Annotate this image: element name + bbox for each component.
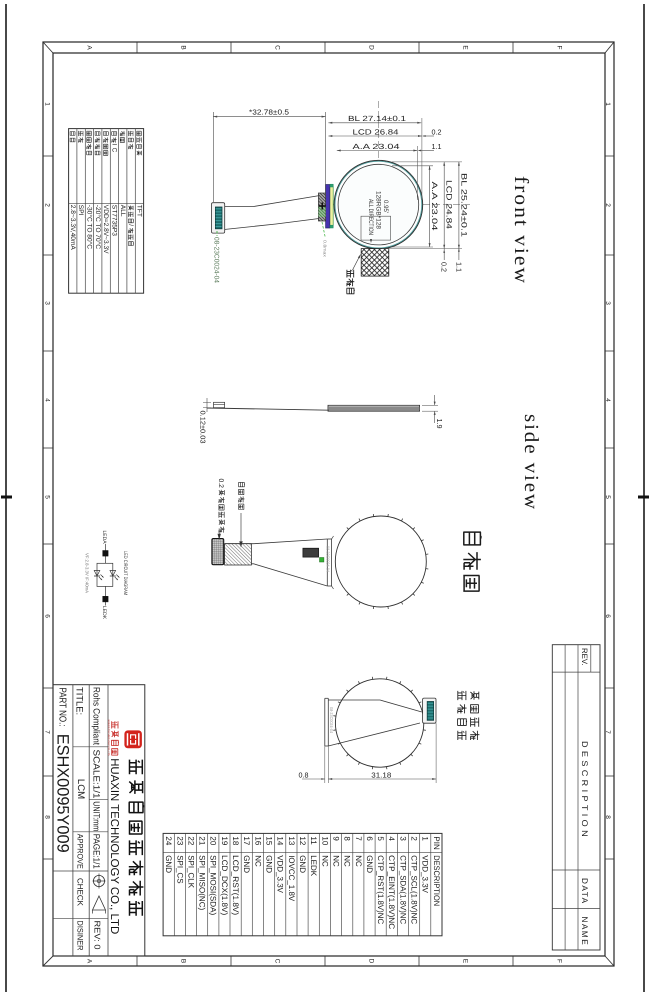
svg-text:7: 7: [354, 836, 363, 841]
svg-text:D: D: [368, 45, 375, 50]
svg-text:TFT: TFT: [136, 205, 143, 217]
svg-text:2: 2: [410, 836, 419, 841]
svg-text:8: 8: [44, 815, 51, 819]
svg-text:PAGE:1/1: PAGE:1/1: [92, 834, 102, 869]
svg-text:0.8max: 0.8max: [322, 240, 327, 258]
svg-text:VF:2.8-3.3V IF:40mA: VF:2.8-3.3V IF:40mA: [85, 553, 90, 593]
svg-text:LEDA: LEDA: [101, 531, 107, 545]
svg-text:GND: GND: [298, 855, 307, 873]
svg-text:SPI: SPI: [77, 205, 84, 216]
svg-text:CTP_SDA(1.8V)NC: CTP_SDA(1.8V)NC: [398, 855, 407, 924]
svg-text:24: 24: [164, 836, 173, 845]
svg-text:LEDK: LEDK: [309, 855, 318, 877]
svg-text:LCM: LCM: [75, 779, 86, 799]
svg-text:LED CIRCUIT DIAGRAM: LED CIRCUIT DIAGRAM: [122, 551, 128, 595]
svg-text:2: 2: [44, 203, 51, 207]
svg-text:5: 5: [376, 836, 385, 841]
svg-text:8: 8: [604, 815, 611, 819]
svg-text:NC: NC: [253, 855, 262, 867]
svg-text:side view: side view: [520, 414, 542, 511]
svg-text:0.2: 0.2: [432, 128, 442, 137]
svg-text:B: B: [180, 959, 187, 963]
svg-text:10: 10: [320, 836, 329, 845]
svg-text:/: /: [127, 224, 134, 226]
svg-text:LEDK: LEDK: [101, 606, 107, 620]
svg-text:1: 1: [421, 836, 430, 841]
svg-text:A: A: [86, 959, 93, 964]
svg-text:11: 11: [309, 836, 318, 845]
svg-text:ALL: ALL: [119, 205, 126, 217]
svg-text:22: 22: [186, 836, 195, 845]
svg-text:GND: GND: [365, 855, 374, 873]
svg-text:GND: GND: [265, 855, 274, 873]
svg-text:SPI_MOSI(SDA): SPI_MOSI(SDA): [209, 855, 218, 915]
svg-text:9: 9: [331, 836, 340, 841]
svg-text:SPI_CS: SPI_CS: [175, 855, 184, 883]
svg-text:1: 1: [44, 102, 51, 106]
svg-text:12: 12: [298, 836, 307, 845]
svg-text:7: 7: [604, 730, 611, 734]
svg-text:DATA: DATA: [580, 878, 589, 905]
svg-text:SPI_CLK: SPI_CLK: [186, 855, 195, 889]
svg-text:DISINER: DISINER: [76, 921, 85, 951]
svg-text:LCD_RST(1.8V): LCD_RST(1.8V): [231, 855, 240, 915]
svg-text:0.95': 0.95': [382, 200, 389, 213]
svg-text:2: 2: [604, 203, 611, 207]
svg-text:A.A 23.04: A.A 23.04: [430, 182, 439, 232]
svg-text:CTP_EINT(1.8V)NC: CTP_EINT(1.8V)NC: [387, 855, 396, 929]
svg-text:16: 16: [253, 836, 262, 845]
svg-text:-20°C TO 70°C: -20°C TO 70°C: [94, 205, 101, 249]
svg-text:ESHX0095Y009: ESHX0095Y009: [54, 734, 72, 853]
svg-text:TITLE:: TITLE:: [75, 687, 86, 715]
svg-text:15: 15: [265, 836, 274, 845]
svg-text:B: B: [180, 45, 187, 49]
svg-text:DESCRIPTION: DESCRIPTION: [432, 855, 441, 906]
svg-text:2.8~3.3V,40mA: 2.8~3.3V,40mA: [69, 205, 76, 251]
svg-text:LCD 26.84: LCD 26.84: [353, 128, 399, 137]
svg-text:0.2: 0.2: [440, 262, 449, 272]
svg-text:3: 3: [44, 301, 51, 305]
svg-text:13: 13: [287, 836, 296, 845]
svg-text:3: 3: [398, 836, 407, 841]
svg-text:18: 18: [231, 836, 240, 845]
svg-text:ST7735P3: ST7735P3: [111, 205, 118, 236]
svg-text:E: E: [462, 45, 469, 50]
svg-text:VDD_3.3V: VDD_3.3V: [421, 855, 430, 893]
svg-text:front view: front view: [510, 176, 532, 285]
svg-text:4: 4: [604, 398, 611, 402]
svg-text:HUAXIN TECHNOLOGY CO.,LTD: HUAXIN TECHNOLOGY CO.,LTD: [107, 720, 110, 756]
svg-text:E: E: [462, 959, 469, 964]
svg-text:19: 19: [220, 836, 229, 845]
svg-text:08-23C0024-04: 08-23C0024-04: [326, 546, 331, 573]
svg-text:7: 7: [44, 730, 51, 734]
svg-text:PIN: PIN: [432, 836, 441, 850]
svg-text:17: 17: [242, 836, 251, 845]
svg-text:GND: GND: [164, 855, 173, 873]
svg-text:LCD 24.84: LCD 24.84: [445, 180, 454, 230]
svg-text:6: 6: [44, 614, 51, 618]
svg-text:128RGB*128: 128RGB*128: [374, 191, 381, 229]
svg-text:*32.78±0.5: *32.78±0.5: [249, 108, 289, 117]
svg-text:1.1: 1.1: [432, 142, 442, 151]
svg-text:VDD=2.8V~3.3V: VDD=2.8V~3.3V: [102, 205, 109, 254]
svg-text:14: 14: [276, 836, 285, 845]
svg-text:GND: GND: [242, 855, 251, 873]
svg-text:4: 4: [44, 398, 51, 402]
svg-text:F: F: [556, 46, 563, 50]
svg-text:08-23C0024-04: 08-23C0024-04: [329, 707, 334, 734]
svg-text:CHECK: CHECK: [76, 878, 85, 907]
svg-text:CTP_SCL(1.8V)NC: CTP_SCL(1.8V)NC: [410, 855, 419, 924]
svg-text:I: I: [111, 143, 118, 145]
svg-text:1: 1: [604, 102, 611, 106]
svg-text:08-23C0024-04: 08-23C0024-04: [212, 237, 219, 283]
svg-text:LCD_DCX(1.8V): LCD_DCX(1.8V): [220, 855, 229, 915]
svg-text:HUAXIN TECHNOLOGY CO., LTD: HUAXIN TECHNOLOGY CO., LTD: [108, 758, 120, 934]
svg-text:3: 3: [604, 301, 611, 305]
svg-text:NC: NC: [354, 855, 363, 867]
svg-text:CTP_RST(1.8V)NC: CTP_RST(1.8V)NC: [376, 855, 385, 924]
svg-text:NC: NC: [343, 855, 352, 867]
svg-text:A: A: [86, 45, 93, 50]
svg-text:SCALE:1/1: SCALE:1/1: [92, 750, 102, 799]
svg-text:BL 25.24±0.1: BL 25.24±0.1: [459, 173, 468, 237]
svg-text:VDD_3.3V: VDD_3.3V: [276, 855, 285, 893]
svg-text:NC: NC: [331, 855, 340, 867]
svg-text:C: C: [111, 148, 118, 153]
svg-text:21: 21: [198, 836, 207, 845]
svg-text:DESCRIPTION: DESCRIPTION: [580, 741, 589, 840]
svg-text:REV.: REV.: [580, 648, 589, 665]
svg-text:23: 23: [175, 836, 184, 845]
svg-text:IOVCC_1.8V: IOVCC_1.8V: [287, 855, 296, 902]
svg-text:20: 20: [209, 836, 218, 845]
svg-text:6: 6: [604, 614, 611, 618]
svg-text:31.18: 31.18: [371, 771, 391, 780]
svg-text:6: 6: [365, 836, 374, 841]
svg-text:NAME: NAME: [580, 917, 589, 947]
svg-text:REV: 0: REV: 0: [93, 921, 103, 950]
svg-text:0.8: 0.8: [299, 771, 309, 780]
svg-text:F: F: [556, 959, 563, 963]
svg-text:PART NO.:: PART NO.:: [57, 688, 68, 727]
svg-text:UNIT:mm: UNIT:mm: [92, 801, 102, 831]
svg-text:APPROVE: APPROVE: [76, 834, 85, 869]
svg-text:BL 27.14±0.1: BL 27.14±0.1: [348, 114, 406, 123]
svg-text:ALL DIRECTION: ALL DIRECTION: [367, 199, 374, 235]
svg-text:5: 5: [604, 495, 611, 499]
svg-text:NC: NC: [320, 855, 329, 867]
svg-text:1.9: 1.9: [435, 419, 444, 429]
svg-text:8: 8: [343, 836, 352, 841]
svg-text:C: C: [274, 45, 281, 50]
svg-text:-30°C TO 80°C: -30°C TO 80°C: [86, 205, 93, 249]
svg-text:D: D: [368, 959, 375, 964]
svg-text:SPI_MISO(NC): SPI_MISO(NC): [198, 855, 207, 910]
svg-text:Rohs Compliant: Rohs Compliant: [92, 687, 102, 745]
svg-text:C: C: [274, 959, 281, 964]
svg-text:A.A 23.04: A.A 23.04: [353, 142, 400, 151]
svg-text:5: 5: [44, 495, 51, 499]
svg-text:0.2: 0.2: [217, 479, 224, 489]
svg-text:4: 4: [387, 836, 396, 841]
svg-text:1.1: 1.1: [454, 262, 463, 272]
svg-text:0.12±0.03: 0.12±0.03: [199, 411, 206, 444]
